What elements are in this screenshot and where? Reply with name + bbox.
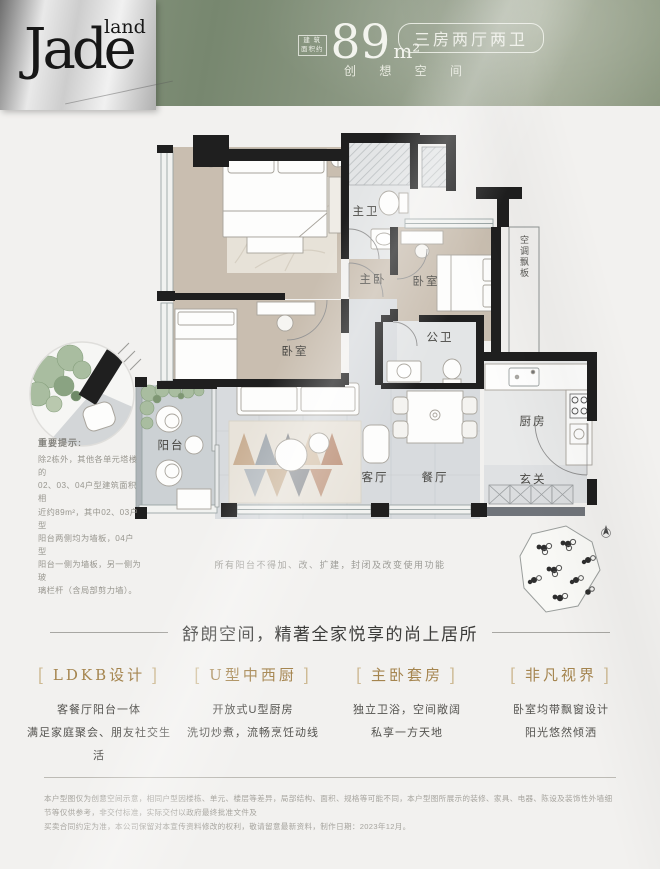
- important-notice: 重要提示: 除2栋外，其他各单元塔楼的 02、03、04户型建筑面积相 近约89…: [38, 436, 142, 597]
- toilet: [379, 191, 399, 215]
- toilet-2: [443, 359, 461, 379]
- notice-title: 重要提示:: [38, 436, 142, 449]
- disclaimer-line-2: 买卖合同约定为准，本公司保留对本宣传资料修改的权利，敬请留意最新资料，制作日期：…: [44, 820, 620, 834]
- feature-line: 客餐厅阳台一体: [24, 699, 174, 722]
- tagline-rule-left: [50, 632, 168, 633]
- floorplan: 主卫 主卧 卧室 卧室 公卫 空调飘板 阳台 客厅 餐厅 厨房 玄关: [135, 133, 605, 543]
- notice-line: 除2栋外，其他各单元塔楼的: [38, 453, 142, 479]
- feature-line: 私享一方天地: [332, 722, 482, 745]
- balcony-chair: [156, 406, 182, 432]
- room-label-ac-panel: 空调飘板: [519, 234, 529, 279]
- feature-title: 非凡视界: [510, 664, 612, 685]
- area-value: 89: [331, 21, 391, 66]
- room-label-dining: 餐厅: [422, 470, 449, 484]
- room-label-balcony: 阳台: [158, 438, 185, 452]
- feature-line: 阳光悠然倾洒: [486, 722, 636, 745]
- shoe-cabinet: [489, 485, 573, 504]
- armchair: [363, 425, 389, 463]
- area-label: 建 筑 面积约: [298, 35, 327, 56]
- feature-columns: LDKB设计 客餐厅阳台一体 满足家庭聚会、朋友社交生活 U型中西厨 开放式U型…: [24, 664, 636, 768]
- poster-page: 建 筑 面积约 89 m² 三房两厅两卫 创 想 空 间 Jade land: [0, 0, 660, 869]
- tagline-row: 舒朗空间，精著全家悦享的尚上居所: [0, 620, 660, 645]
- room-label-bedroom-left: 卧室: [282, 344, 309, 358]
- feature-ldkb: LDKB设计 客餐厅阳台一体 满足家庭聚会、朋友社交生活: [24, 664, 174, 768]
- balcony-detail-circle: [28, 338, 144, 450]
- tagline-text: 舒朗空间，精著全家悦享的尚上居所: [182, 620, 478, 645]
- disclaimer-line-1: 本户型图仅为创意空间示意，相同户型因楼栋、单元、楼层等差异，局部结构、面积、规格…: [44, 792, 620, 820]
- room-label-foyer: 玄关: [520, 472, 547, 486]
- brand-logo-sub: land: [104, 16, 146, 38]
- room-label-bedroom-right: 卧室: [413, 274, 440, 288]
- feature-line: 开放式U型厨房: [178, 699, 328, 722]
- feature-line: 独立卫浴，空间敞阔: [332, 699, 482, 722]
- footer-divider: [44, 777, 616, 778]
- room-label-guest-bath: 公卫: [427, 331, 454, 344]
- feature-kitchen: U型中西厨 开放式U型厨房 洗切炒煮，流畅烹饪动线: [178, 664, 328, 768]
- feature-line: 卧室均带飘窗设计: [486, 699, 636, 722]
- feature-view: 非凡视界 卧室均带飘窗设计 阳光悠然倾洒: [486, 664, 636, 768]
- feature-title: U型中西厨: [194, 664, 311, 685]
- bed-bench: [247, 237, 303, 253]
- notice-line: 璃栏杆（含局部剪力墙）。: [38, 584, 142, 597]
- balcony-table: [185, 436, 203, 454]
- feature-line: 洗切炒煮，流畅烹饪动线: [178, 722, 328, 745]
- notice-line: 02、03、04户型建筑面积相: [38, 479, 142, 505]
- notice-line: 阳台两侧均为墙板，04户型: [38, 532, 142, 558]
- feature-master-suite: 主卧套房 独立卫浴，空间敞阔 私享一方天地: [332, 664, 482, 768]
- feature-line: 满足家庭聚会、朋友社交生活: [24, 722, 174, 768]
- room-label-master-bedroom: 主卧: [360, 273, 387, 286]
- feature-title: LDKB设计: [38, 664, 160, 685]
- compass-icon: [602, 525, 611, 538]
- area-label-line1: 建 筑: [303, 37, 321, 44]
- coffee-table: [275, 439, 307, 471]
- room-label-kitchen: 厨房: [520, 415, 547, 428]
- room-label-master-bath: 主卫: [353, 205, 380, 218]
- plan-footnote: 所有阳台不得加、改、扩建，封闭及改变使用功能: [0, 558, 660, 571]
- layout-badge: 三房两厅两卫: [398, 23, 544, 53]
- tagline-rule-right: [492, 632, 610, 633]
- feature-title: 主卧套房: [356, 664, 458, 685]
- balcony-chair: [156, 460, 182, 486]
- footer-disclaimer: 本户型图仅为创意空间示意，相同户型因楼栋、单元、楼层等差异，局部结构、面积、规格…: [44, 792, 620, 834]
- room-label-living: 客厅: [362, 470, 389, 484]
- brand-logo-panel: Jade land: [0, 0, 156, 110]
- area-label-line2: 面积约: [301, 46, 324, 53]
- header-slogan: 创 想 空 间: [288, 62, 528, 79]
- notice-line: 近约89m²，其中02、03户型: [38, 506, 142, 532]
